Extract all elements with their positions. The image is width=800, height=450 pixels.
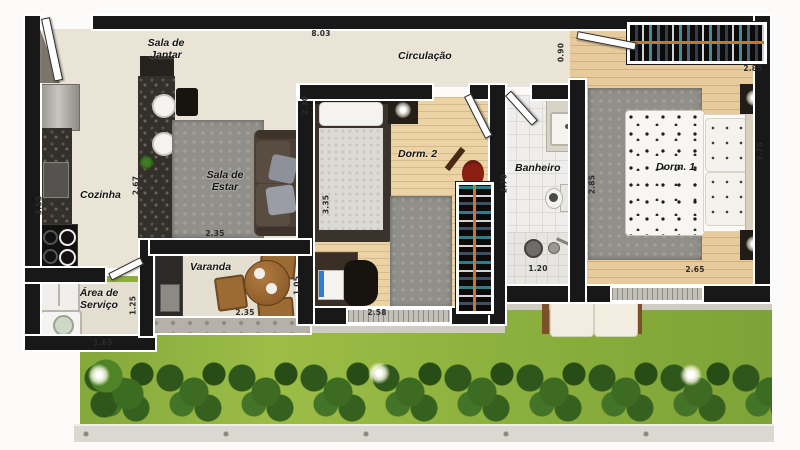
dim-varanda-h: 1.05 bbox=[293, 273, 302, 299]
plate bbox=[152, 94, 176, 118]
bar-stool bbox=[176, 88, 198, 116]
wall-varanda-left bbox=[140, 240, 153, 336]
laptop-screen bbox=[319, 271, 324, 297]
kitchen-sink bbox=[43, 162, 69, 198]
dorm2-wardrobe bbox=[456, 182, 494, 314]
varanda-parapet bbox=[150, 318, 310, 333]
dim-dorm1-w: 2.65 bbox=[682, 265, 708, 274]
garden-walkway bbox=[300, 324, 505, 333]
plate bbox=[254, 268, 265, 279]
sofa-pillow bbox=[265, 184, 297, 216]
label-area-servico: Área de Serviço bbox=[70, 288, 128, 312]
garden-light bbox=[88, 364, 110, 386]
sofa-pillow bbox=[268, 154, 299, 185]
varanda-chair bbox=[214, 274, 248, 312]
wall-corridor-a bbox=[300, 85, 432, 99]
label-cozinha: Cozinha bbox=[80, 190, 121, 202]
varanda-table bbox=[244, 260, 290, 306]
label-varanda: Varanda bbox=[190, 262, 231, 274]
stove-burner bbox=[59, 249, 76, 266]
dim-servico-h: 1.25 bbox=[129, 293, 138, 319]
shower-head bbox=[548, 242, 560, 254]
dim-dorm2-h: 3.35 bbox=[322, 192, 331, 218]
stove-burner bbox=[43, 230, 58, 245]
dorm1-pillow bbox=[705, 118, 747, 172]
laptop bbox=[318, 270, 344, 300]
garden-light bbox=[368, 362, 390, 384]
dorm2-rug bbox=[390, 196, 452, 308]
desk-chair bbox=[344, 260, 378, 306]
washer-drum bbox=[53, 315, 74, 336]
dorm1-wardrobe bbox=[627, 22, 767, 64]
dim-sala-w: 2.35 bbox=[202, 229, 228, 238]
shower-drain bbox=[524, 239, 543, 258]
floor-plan: 8.03 0.90 2.30 2.67 3.55 2.35 3.35 2.58 … bbox=[0, 0, 800, 450]
dim-dorm2-w: 2.58 bbox=[364, 308, 390, 317]
wall-left bbox=[25, 16, 40, 350]
refrigerator bbox=[40, 84, 80, 131]
wardrobe-rod bbox=[630, 41, 764, 44]
dim-dorm1-h: 3.75 bbox=[756, 139, 765, 165]
bbq-counter bbox=[155, 255, 183, 317]
dim-cozinha-w: 2.67 bbox=[132, 173, 141, 199]
label-banheiro: Banheiro bbox=[515, 163, 561, 175]
garden-light bbox=[680, 364, 702, 386]
toilet-seat bbox=[549, 193, 558, 202]
dim-varanda-w: 2.35 bbox=[232, 308, 258, 317]
stove-burner bbox=[59, 229, 76, 246]
dim-sala-h: 2.30 bbox=[301, 93, 310, 119]
garden-bush bbox=[86, 348, 152, 424]
garden-hedge bbox=[84, 350, 772, 426]
stove-burner bbox=[43, 249, 58, 264]
dim-cozinha-h: 3.55 bbox=[35, 193, 44, 219]
laundry-sink-divider bbox=[58, 284, 60, 306]
plate bbox=[266, 283, 277, 294]
wall-banheiro-dorm1 bbox=[570, 80, 585, 302]
dorm1-window bbox=[612, 288, 702, 300]
garden-curb bbox=[74, 424, 774, 442]
label-dorm1: Dorm. 1 bbox=[656, 162, 695, 174]
wall-sala-varanda bbox=[150, 240, 310, 254]
dorm2-bed bbox=[311, 92, 391, 242]
bbq-tray bbox=[160, 284, 180, 312]
stove bbox=[38, 224, 78, 270]
dim-servico-w: 1.65 bbox=[90, 338, 116, 347]
label-dorm2: Dorm. 2 bbox=[398, 149, 437, 161]
dorm2-pillow bbox=[319, 102, 383, 126]
dim-corridor: 0.90 bbox=[557, 40, 566, 66]
dim-dorm1-wall: 2.85 bbox=[588, 172, 597, 198]
label-circulacao: Circulação bbox=[398, 51, 452, 63]
dorm1-pillow bbox=[705, 172, 747, 226]
dim-top-width: 8.03 bbox=[308, 29, 334, 38]
label-sala-jantar: Sala de Jantar bbox=[135, 38, 197, 62]
dim-banheiro-w: 1.20 bbox=[525, 264, 551, 273]
plant bbox=[140, 156, 153, 169]
wall-cozinha-servico bbox=[25, 268, 105, 282]
dorm2-lamp bbox=[395, 102, 411, 118]
dim-closet-w: 2.85 bbox=[740, 64, 766, 73]
wardrobe-rod bbox=[473, 185, 476, 311]
label-sala-estar: Sala de Estar bbox=[196, 170, 254, 194]
dim-banheiro-h: 2.70 bbox=[500, 171, 509, 197]
